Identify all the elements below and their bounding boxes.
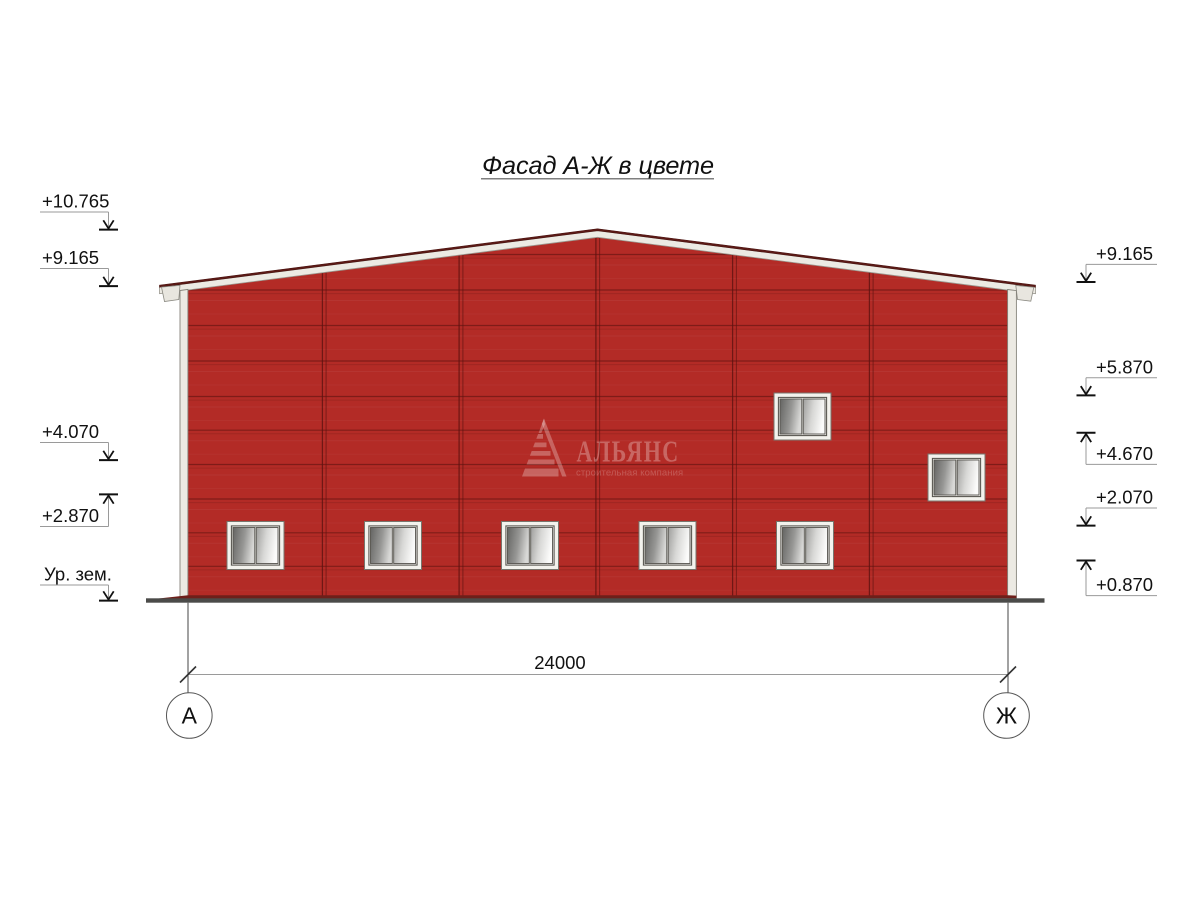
svg-text:АЛЬЯНС: АЛЬЯНС — [577, 434, 680, 469]
svg-text:+0.870: +0.870 — [1096, 574, 1153, 595]
svg-text:+2.870: +2.870 — [42, 505, 99, 526]
svg-text:Фасад А-Ж в цвете: Фасад А-Ж в цвете — [482, 152, 714, 180]
svg-text:+5.870: +5.870 — [1096, 356, 1153, 377]
svg-text:Ур. зем.: Ур. зем. — [44, 564, 112, 585]
svg-text:+10.765: +10.765 — [42, 191, 109, 212]
svg-text:строительная компания: строительная компания — [576, 468, 683, 479]
svg-text:+4.670: +4.670 — [1096, 443, 1153, 464]
svg-text:А: А — [182, 703, 198, 729]
svg-text:+4.070: +4.070 — [42, 421, 99, 442]
svg-text:24000: 24000 — [534, 652, 585, 673]
svg-text:+2.070: +2.070 — [1096, 487, 1153, 508]
svg-text:+9.165: +9.165 — [42, 247, 99, 268]
svg-text:Ж: Ж — [996, 703, 1017, 729]
svg-text:+9.165: +9.165 — [1096, 243, 1153, 264]
